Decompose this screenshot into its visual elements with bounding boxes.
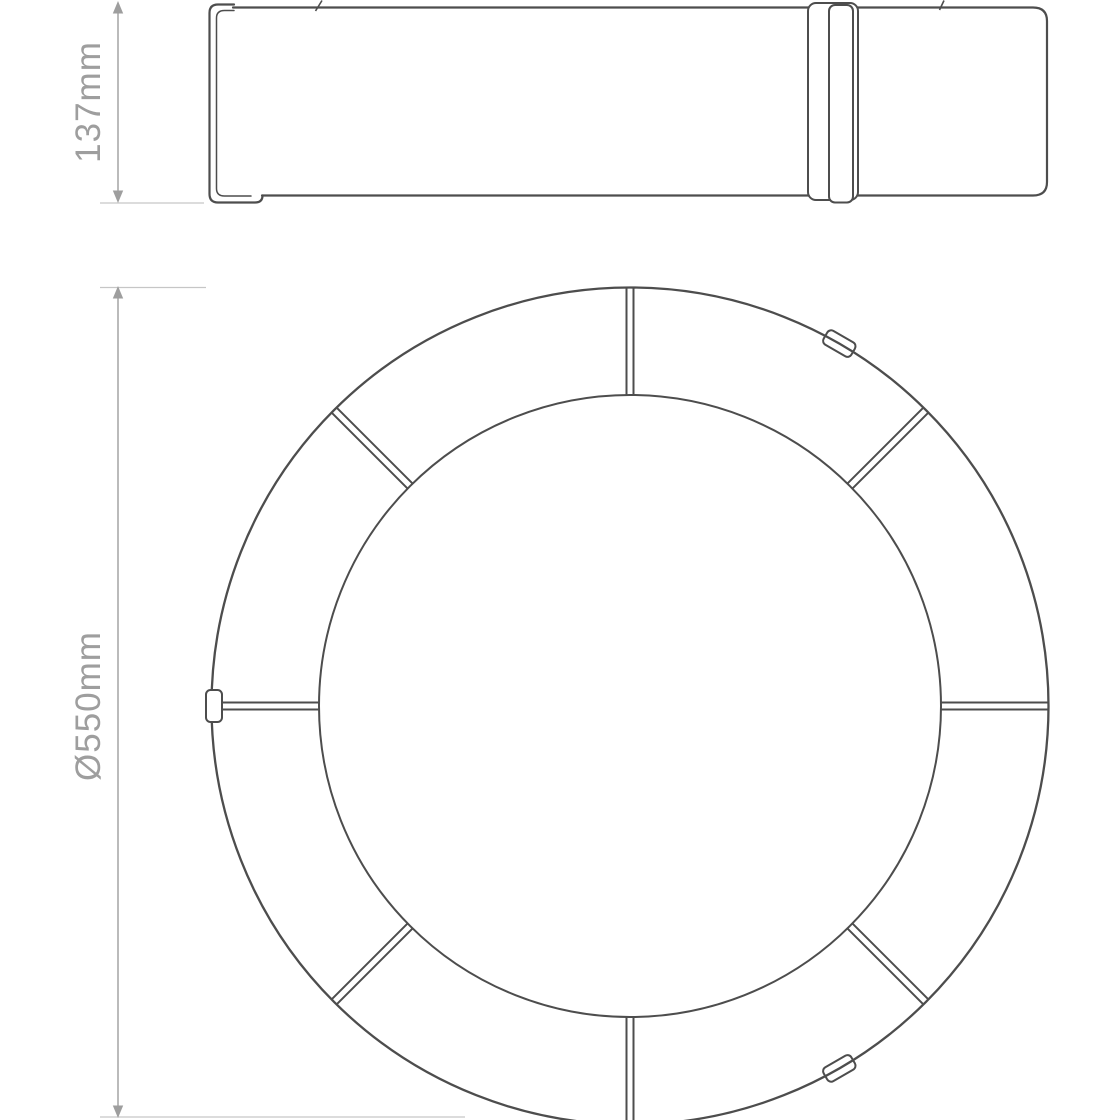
- segment-dividers: [212, 288, 1049, 1120]
- end-bracket-outer: [210, 5, 263, 203]
- height-dimension-label: 137mm: [69, 41, 108, 163]
- arrow-up-icon: [113, 1, 123, 14]
- divider-right: [941, 703, 1049, 710]
- diameter-dimension-label: Ø550mm: [69, 631, 108, 781]
- rim-clips: [206, 329, 857, 1084]
- arrow-down-icon: [113, 1106, 123, 1119]
- seam-tick-left: [316, 1, 323, 12]
- rim-clip-left: [206, 690, 222, 722]
- end-bracket-inner: [217, 11, 252, 197]
- divider-left: [212, 703, 320, 710]
- technical-dimension-drawing: 137mm Ø550mm: [0, 0, 1120, 1120]
- divider-lower-right: [847, 923, 928, 1004]
- divider-upper-right: [847, 407, 928, 488]
- height-dimension: 137mm: [69, 1, 204, 203]
- divider-top: [627, 288, 634, 395]
- divider-lower-left: [331, 923, 412, 1004]
- divider-bottom: [627, 1017, 634, 1120]
- mounting-band-inner: [829, 5, 853, 203]
- divider-upper-left: [331, 407, 412, 488]
- inner-diffuser-circle: [319, 395, 941, 1017]
- arrow-down-icon: [113, 191, 123, 204]
- plan-view: [206, 288, 1049, 1120]
- fixture-body-outline: [233, 8, 1047, 196]
- side-elevation-view: [210, 1, 1048, 203]
